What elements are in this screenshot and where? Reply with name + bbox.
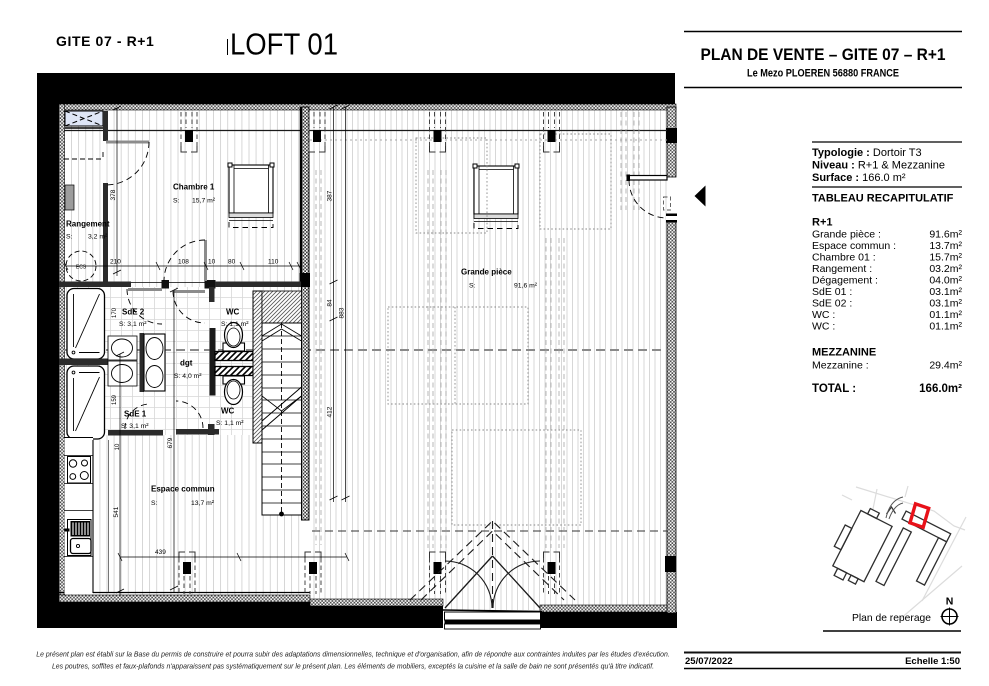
svg-text:S:: S:	[469, 283, 476, 290]
svg-text:Chambre 01 :: Chambre 01 :	[812, 252, 876, 264]
svg-text:210: 210	[110, 259, 121, 266]
svg-text:166.0m²: 166.0m²	[919, 383, 962, 395]
svg-text:412: 412	[327, 406, 334, 417]
svg-text:15,7 m²: 15,7 m²	[192, 198, 216, 205]
svg-text:S: 4,0 m²: S: 4,0 m²	[174, 373, 202, 380]
svg-text:S:: S:	[66, 234, 73, 241]
svg-text:03.1m²: 03.1m²	[929, 298, 962, 310]
svg-text:MEZZANINE: MEZZANINE	[812, 347, 876, 359]
svg-text:159: 159	[112, 394, 118, 405]
svg-text:84: 84	[327, 299, 334, 307]
svg-text:WC :: WC :	[812, 321, 835, 333]
svg-text:25/07/2022: 25/07/2022	[685, 656, 733, 667]
svg-text:Espace commun :: Espace commun :	[812, 240, 896, 252]
svg-text:541: 541	[113, 506, 120, 517]
svg-text:S: 1,1 m²: S: 1,1 m²	[221, 321, 249, 328]
svg-text:Les poutres, soffites et faux-: Les poutres, soffites et faux-plafonds n…	[52, 664, 654, 671]
svg-text:Rangement: Rangement	[66, 220, 110, 229]
svg-text:10: 10	[115, 443, 121, 450]
svg-text:TABLEAU RECAPITULATIF: TABLEAU RECAPITULATIF	[812, 193, 954, 205]
svg-text:ECS: ECS	[76, 265, 87, 271]
svg-text:Mezzanine :: Mezzanine :	[812, 360, 869, 372]
svg-text:439: 439	[155, 549, 166, 556]
svg-text:S:: S:	[151, 500, 158, 507]
svg-text:WC: WC	[226, 308, 240, 317]
svg-text:GITE 07 - R+1: GITE 07 - R+1	[56, 33, 154, 49]
svg-text:S: 3,1 m²: S: 3,1 m²	[121, 423, 149, 430]
svg-text:387: 387	[327, 190, 334, 201]
svg-text:13.7m²: 13.7m²	[929, 240, 962, 252]
svg-text:SdE 2: SdE 2	[122, 308, 145, 317]
svg-text:Grande pièce: Grande pièce	[461, 268, 512, 277]
svg-text:91,6 m²: 91,6 m²	[514, 283, 538, 290]
svg-text:LOFT 01: LOFT 01	[230, 27, 338, 62]
svg-text:S:: S:	[173, 198, 180, 205]
svg-text:04.0m²: 04.0m²	[929, 275, 962, 287]
svg-text:WC :: WC :	[812, 309, 835, 321]
svg-text:13,7 m²: 13,7 m²	[191, 500, 215, 507]
svg-text:01.1m²: 01.1m²	[929, 321, 962, 333]
svg-text:110: 110	[268, 259, 279, 266]
svg-text:PLAN DE VENTE – GITE 07 – R+1: PLAN DE VENTE – GITE 07 – R+1	[701, 45, 946, 64]
svg-text:R+1: R+1	[812, 217, 833, 229]
svg-text:Surface : 166.0 m²: Surface : 166.0 m²	[812, 172, 906, 184]
svg-text:378: 378	[110, 189, 117, 200]
svg-text:91.6m²: 91.6m²	[929, 229, 962, 241]
svg-text:01.1m²: 01.1m²	[929, 309, 962, 321]
svg-text:Le présent plan est établi sur: Le présent plan est établi sur la Base d…	[36, 652, 670, 659]
svg-text:3,2 m²: 3,2 m²	[88, 234, 108, 241]
svg-text:SdE 01 :: SdE 01 :	[812, 286, 852, 298]
svg-text:679: 679	[167, 437, 174, 448]
svg-text:03.2m²: 03.2m²	[929, 263, 962, 275]
svg-text:15.7m²: 15.7m²	[929, 252, 962, 264]
svg-text:10: 10	[208, 259, 216, 266]
svg-text:Le Mezo PLOEREN 56880 FRANCE: Le Mezo PLOEREN 56880 FRANCE	[747, 68, 899, 80]
svg-text:29.4m²: 29.4m²	[929, 360, 962, 372]
svg-text:N: N	[946, 596, 954, 608]
svg-text:Grande pièce :: Grande pièce :	[812, 229, 881, 241]
svg-text:S: 1,1 m²: S: 1,1 m²	[216, 420, 244, 427]
svg-text:Rangement :: Rangement :	[812, 263, 872, 275]
svg-text:80: 80	[228, 259, 236, 266]
svg-text:Echelle 1:50: Echelle 1:50	[905, 656, 960, 667]
svg-text:Typologie : Dortoir T3: Typologie : Dortoir T3	[812, 147, 922, 159]
svg-text:SdE 1: SdE 1	[124, 410, 147, 419]
svg-text:108: 108	[178, 259, 189, 266]
svg-text:883: 883	[339, 307, 346, 318]
svg-text:Niveau : R+1 & Mezzanine: Niveau : R+1 & Mezzanine	[812, 160, 945, 172]
svg-text:SdE 02 :: SdE 02 :	[812, 298, 852, 310]
svg-text:170: 170	[112, 307, 118, 318]
svg-text:Dégagement :: Dégagement :	[812, 275, 878, 287]
svg-text:dgt: dgt	[180, 359, 193, 368]
svg-text:Plan de reperage: Plan de reperage	[852, 612, 931, 624]
svg-text:Chambre 1: Chambre 1	[173, 183, 215, 192]
svg-text:S: 3,1 m²: S: 3,1 m²	[119, 321, 147, 328]
svg-text:Espace commun: Espace commun	[151, 485, 215, 494]
svg-text:03.1m²: 03.1m²	[929, 286, 962, 298]
svg-text:WC: WC	[221, 407, 235, 416]
svg-text:TOTAL :: TOTAL :	[812, 383, 856, 395]
